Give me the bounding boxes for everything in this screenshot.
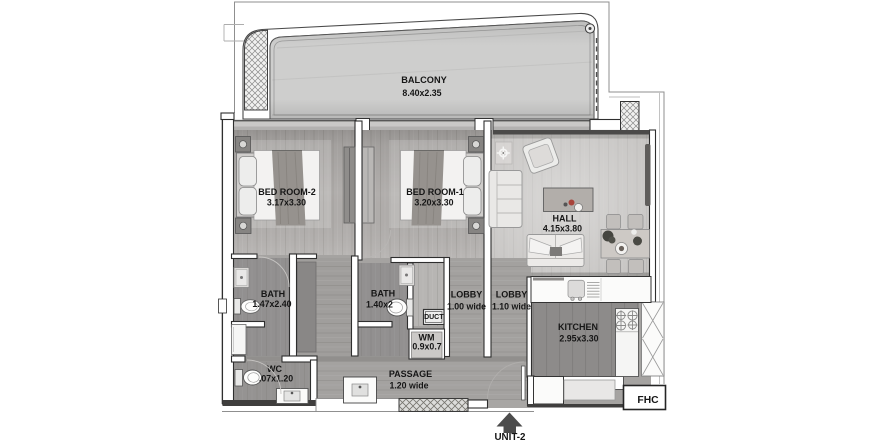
svg-text:3.17x3.30: 3.17x3.30 bbox=[267, 198, 306, 208]
svg-text:BED ROOM-1: BED ROOM-1 bbox=[406, 187, 464, 197]
svg-text:4.15x3.80: 4.15x3.80 bbox=[543, 224, 582, 234]
svg-text:FHC: FHC bbox=[637, 395, 659, 406]
svg-text:PASSAGE: PASSAGE bbox=[389, 369, 432, 379]
svg-text:1.20 wide: 1.20 wide bbox=[389, 381, 428, 391]
svg-text:LOBBY: LOBBY bbox=[451, 290, 483, 300]
svg-text:WC: WC bbox=[267, 364, 282, 374]
svg-text:0.9x0.7: 0.9x0.7 bbox=[412, 342, 441, 352]
svg-text:1.00 wide: 1.00 wide bbox=[447, 302, 486, 312]
svg-text:UNIT-2: UNIT-2 bbox=[494, 432, 526, 440]
svg-text:BED ROOM-2: BED ROOM-2 bbox=[258, 187, 316, 197]
svg-text:KITCHEN: KITCHEN bbox=[558, 322, 598, 332]
svg-text:1.10 wide: 1.10 wide bbox=[492, 302, 531, 312]
svg-text:DUCT: DUCT bbox=[424, 314, 444, 321]
svg-text:HALL: HALL bbox=[553, 214, 577, 224]
svg-text:BATH: BATH bbox=[261, 289, 285, 299]
svg-text:BALCONY: BALCONY bbox=[401, 75, 446, 85]
svg-text:3.20x3.30: 3.20x3.30 bbox=[414, 198, 453, 208]
svg-text:BATH: BATH bbox=[371, 289, 395, 299]
svg-text:8.40x2.35: 8.40x2.35 bbox=[402, 88, 441, 98]
svg-text:.07x1.20: .07x1.20 bbox=[259, 374, 293, 384]
svg-text:2.95x3.30: 2.95x3.30 bbox=[559, 334, 598, 344]
svg-text:1.47x2.40: 1.47x2.40 bbox=[252, 299, 291, 309]
svg-text:LOBBY: LOBBY bbox=[496, 290, 528, 300]
svg-text:1.40x2: 1.40x2 bbox=[366, 300, 393, 310]
